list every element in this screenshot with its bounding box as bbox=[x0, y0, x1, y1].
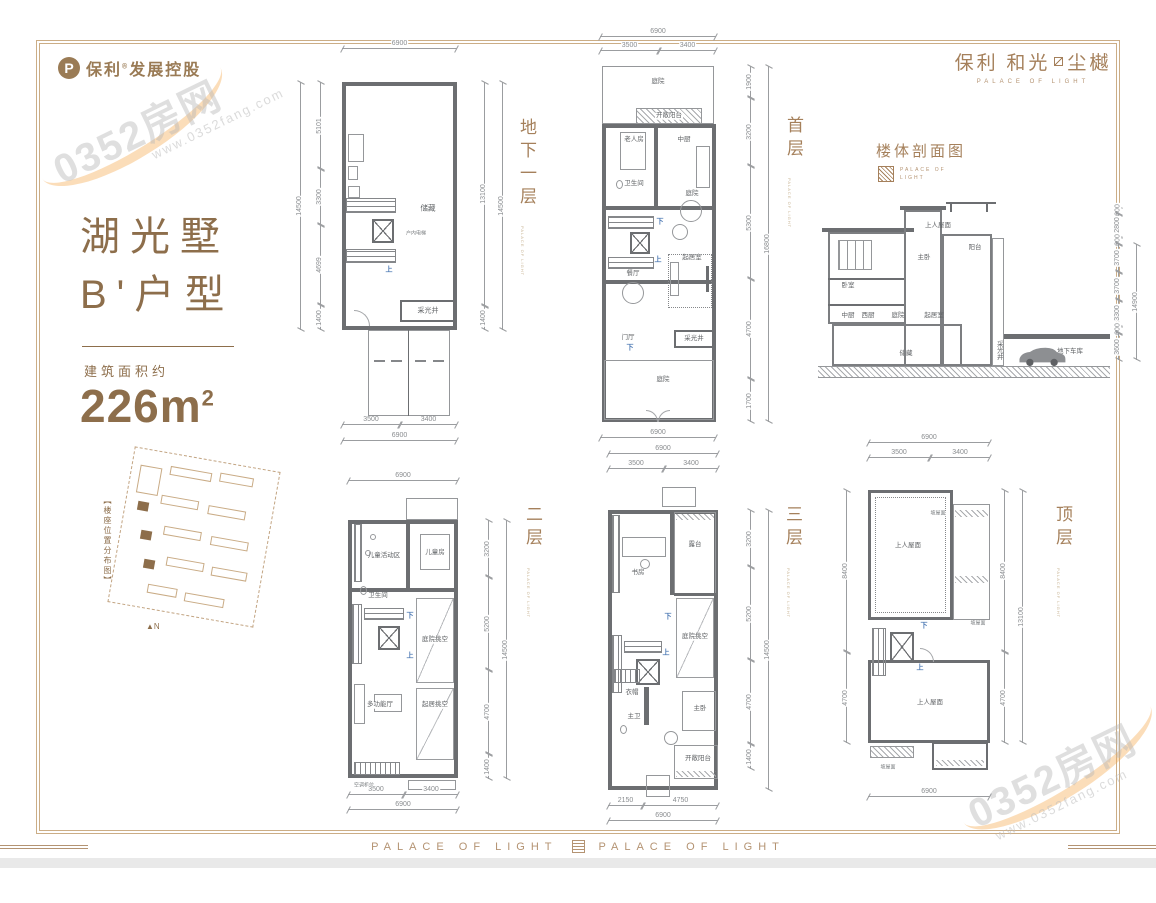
dimension: 14500 bbox=[502, 82, 503, 330]
building-footprint bbox=[136, 465, 163, 496]
dimension: 3500 bbox=[342, 424, 400, 425]
dimension: 8400 bbox=[846, 490, 847, 652]
courtyard-outline bbox=[604, 360, 714, 420]
dimension: 6900 bbox=[600, 36, 716, 37]
pergola-post bbox=[950, 204, 952, 212]
dimension: 4699 bbox=[320, 225, 321, 305]
dimension: 5200 bbox=[750, 567, 751, 660]
window-grid bbox=[838, 240, 872, 270]
dimension: 3200 bbox=[750, 98, 751, 166]
floor-slab bbox=[828, 278, 906, 280]
section-room-label: 上人屋面 bbox=[925, 223, 951, 230]
garage-slab bbox=[1004, 334, 1110, 339]
room-label: 书房 bbox=[632, 570, 645, 577]
room-label: 主卫 bbox=[628, 714, 641, 721]
footer: PALACE OF LIGHT PALACE OF LIGHT bbox=[0, 838, 1156, 858]
stair-hatch bbox=[608, 257, 654, 269]
floor-sublabel: PALACE OF LIGHT bbox=[526, 568, 531, 618]
dimension: 3400 bbox=[659, 50, 716, 51]
tower-outline bbox=[904, 210, 942, 366]
closet-hatch bbox=[354, 524, 362, 582]
roof-hatch bbox=[955, 510, 988, 517]
room-label: 儿童房 bbox=[425, 550, 445, 557]
plant-icon bbox=[680, 200, 702, 222]
dimension: 6900 bbox=[600, 437, 716, 438]
building-footprint bbox=[163, 526, 202, 541]
pergola bbox=[946, 202, 996, 204]
roof-hatch bbox=[870, 746, 914, 758]
palace-logo-text: PALACE OFLIGHT bbox=[900, 166, 946, 182]
logo-line1: PALACE OF bbox=[900, 166, 946, 174]
room-label: 上人屋面 bbox=[895, 543, 921, 550]
stair-direction-label: 上 bbox=[386, 267, 393, 274]
dimension: 3700 bbox=[1118, 272, 1119, 300]
dimension: 4700 bbox=[846, 652, 847, 743]
highlighted-building bbox=[143, 559, 155, 570]
room-label: 采光井 bbox=[684, 336, 704, 343]
ac-platform-hatch bbox=[354, 762, 400, 775]
dimension: 14500 bbox=[300, 82, 301, 330]
section-room-label: 主卧 bbox=[918, 255, 931, 262]
chair-icon bbox=[664, 731, 678, 745]
dimension: 4700 bbox=[488, 670, 489, 754]
floor-slab bbox=[828, 304, 906, 306]
section-room-label: 卧室 bbox=[842, 283, 855, 290]
dimension: 14900 bbox=[1136, 244, 1137, 360]
dimension: 3500 bbox=[600, 50, 659, 51]
dimension: 4700 bbox=[1004, 652, 1005, 743]
room-label: 老人房 bbox=[624, 137, 644, 144]
elevator-icon bbox=[378, 626, 400, 650]
roof-hatch bbox=[936, 760, 984, 766]
stair-direction-label: 下 bbox=[665, 614, 672, 621]
dimension: 5101 bbox=[320, 82, 321, 169]
closet-hatch bbox=[612, 515, 620, 593]
room-label: 开敞阳台 bbox=[655, 113, 683, 120]
elevator-icon bbox=[630, 232, 650, 254]
room-label: 储藏 bbox=[421, 204, 436, 212]
building-footprint bbox=[184, 592, 225, 608]
section-title: 楼体剖面图 bbox=[876, 140, 966, 161]
room-label: 中厨 bbox=[678, 137, 691, 144]
unit-info: 湖光墅 B'户型 建筑面积约 226m2 bbox=[80, 208, 234, 433]
plant-icon bbox=[672, 224, 688, 240]
dimension: 3400 bbox=[400, 424, 457, 425]
dimension: 2150 bbox=[608, 805, 643, 806]
stair-direction-label: 上 bbox=[917, 665, 924, 672]
dimension: 5300 bbox=[750, 166, 751, 279]
floor-label-third: 三层 bbox=[780, 505, 805, 551]
site-location-map: 【楼座位置分布图】 ▲N bbox=[58, 452, 288, 652]
balcony-hatch bbox=[676, 771, 716, 777]
stair-direction-label: 下 bbox=[921, 623, 928, 630]
dimension: 6900 bbox=[868, 442, 990, 443]
closet-icon bbox=[644, 687, 649, 725]
room-label: 庭院 bbox=[657, 377, 670, 384]
car-icon bbox=[1016, 344, 1068, 367]
elevator-icon bbox=[890, 632, 914, 662]
floor-sublabel: PALACE OF LIGHT bbox=[520, 226, 525, 276]
floor-sublabel: PALACE OF LIGHT bbox=[1056, 568, 1061, 618]
wardrobe-hatch bbox=[614, 669, 640, 683]
north-label: N bbox=[154, 622, 160, 631]
wall bbox=[670, 510, 674, 595]
floor-sublabel: PALACE OF LIGHT bbox=[786, 568, 791, 618]
project-name: 保利 和光 尘樾 bbox=[938, 48, 1128, 75]
floor-label-basement: 地下一层 bbox=[514, 118, 539, 210]
wall bbox=[654, 124, 658, 210]
room-label: 庭院 bbox=[652, 79, 665, 86]
dimension: 3500 bbox=[348, 794, 404, 795]
dimension: 6900 bbox=[342, 48, 457, 49]
door-arc bbox=[920, 648, 934, 662]
developer-name-cn: 保利 bbox=[86, 62, 122, 79]
dimension: 3200 bbox=[488, 520, 489, 577]
dimension: 6900 bbox=[608, 820, 718, 821]
sofa-icon bbox=[354, 684, 365, 724]
cabinet-icon bbox=[348, 186, 360, 198]
room-label: 起居室 bbox=[682, 255, 702, 262]
site-map-label: 【楼座位置分布图】 bbox=[102, 496, 113, 586]
dimension: 6900 bbox=[348, 809, 458, 810]
parking-mark bbox=[391, 360, 402, 362]
room-label: 坡屋面 bbox=[930, 512, 945, 517]
kitchen-counter-icon bbox=[696, 146, 710, 188]
divider bbox=[82, 346, 234, 347]
side-roof-outline bbox=[953, 504, 990, 620]
project-name-en: PALACE OF LIGHT bbox=[938, 79, 1128, 85]
section-room-label: 西厨 bbox=[862, 313, 875, 320]
desk-icon bbox=[622, 537, 666, 557]
parking-divider bbox=[408, 330, 409, 416]
stair-direction-label: 下 bbox=[627, 345, 634, 352]
room-label: 庭院 bbox=[686, 191, 699, 198]
room-label: 庭院挑空 bbox=[681, 634, 709, 641]
terrace-hatch bbox=[676, 514, 714, 520]
roof-overhang-outline bbox=[406, 498, 458, 520]
parking-mark bbox=[374, 360, 385, 362]
building-footprint bbox=[210, 536, 249, 551]
dimension: 3700 bbox=[1118, 244, 1119, 272]
dimension: 6900 bbox=[342, 440, 457, 441]
wall bbox=[406, 520, 410, 588]
room-label: 起居挑空 bbox=[421, 702, 449, 709]
floor-label-second: 二层 bbox=[520, 505, 545, 551]
area-label: 建筑面积约 bbox=[84, 361, 234, 380]
parking-mark bbox=[433, 360, 444, 362]
building-footprint bbox=[147, 584, 178, 598]
play-icon bbox=[370, 534, 376, 540]
seal-icon bbox=[1054, 57, 1063, 66]
dimension: 4750 bbox=[643, 805, 718, 806]
site-map-outline bbox=[107, 446, 280, 627]
room-label: 门厅 bbox=[622, 335, 635, 342]
dimension: 13100 bbox=[484, 82, 485, 306]
unit-title-line2: B'户型 bbox=[80, 266, 234, 324]
dimension: 4700 bbox=[750, 660, 751, 744]
dimension: 8400 bbox=[1004, 490, 1005, 652]
stair-hatch bbox=[346, 249, 396, 263]
section-room-label: 阳台 bbox=[969, 245, 982, 252]
stair-direction-label: 上 bbox=[663, 650, 670, 657]
floor-sublabel: PALACE OF LIGHT bbox=[787, 178, 792, 228]
floor-label-roof: 顶层 bbox=[1050, 505, 1075, 551]
dimension: 1400 bbox=[484, 306, 485, 330]
stair-hatch bbox=[624, 641, 662, 653]
parking-mark bbox=[415, 360, 426, 362]
dimension: 3400 bbox=[664, 468, 718, 469]
first-floor-plan: 6900 3500 3400 庭院 开敞阳台 老人房 中厨 卫生间 下 上 庭院… bbox=[558, 28, 813, 448]
dimension: 1400 bbox=[320, 305, 321, 330]
dimension: 16800 bbox=[768, 66, 769, 422]
ground-hatch bbox=[818, 366, 1110, 378]
stair-hatch bbox=[352, 604, 362, 664]
developer-name: 保利®发展控股 bbox=[86, 56, 201, 80]
roof-hatch bbox=[955, 576, 988, 583]
stair-hatch bbox=[608, 216, 654, 229]
elevator-icon bbox=[372, 219, 394, 243]
roof-floor-plan: 6900 3500 3400 上人屋面 坡屋面 坡屋面 下 上 上人屋面 坡屋面… bbox=[828, 428, 1088, 838]
stair-direction-label: 下 bbox=[657, 219, 664, 226]
dimension: 3500 bbox=[868, 457, 930, 458]
stair-direction-label: 上 bbox=[407, 653, 414, 660]
area-sup: 2 bbox=[202, 386, 215, 411]
project-name-2: 尘樾 bbox=[1067, 48, 1111, 75]
room-label: 户内电梯 bbox=[406, 232, 426, 237]
room-label: 采光井 bbox=[418, 308, 439, 315]
palace-logo-icon bbox=[878, 166, 894, 182]
cabinet-icon bbox=[348, 166, 358, 180]
sofa-icon bbox=[670, 262, 679, 296]
building-footprint bbox=[169, 466, 212, 482]
area-value: 226m2 bbox=[80, 380, 234, 433]
room-label: 衣帽 bbox=[626, 690, 639, 697]
dormer-outline bbox=[662, 487, 696, 507]
floor-label-first: 首层 bbox=[781, 116, 806, 162]
room-label: 主卧 bbox=[694, 706, 707, 713]
building-footprint bbox=[219, 473, 254, 488]
section-room-label: 中厨 bbox=[842, 313, 855, 320]
terrace-outline bbox=[674, 512, 716, 595]
wall bbox=[674, 593, 718, 596]
dimension: 1400 bbox=[488, 754, 489, 779]
highlighted-building bbox=[137, 501, 149, 512]
parking-stall bbox=[368, 330, 450, 416]
dimension: 3500 bbox=[608, 468, 664, 469]
section-room-label: 起居室 bbox=[924, 313, 944, 320]
footer-palace-right: PALACE OF LIGHT bbox=[599, 841, 785, 853]
developer-name-rest: 发展控股 bbox=[129, 62, 201, 79]
room-label: 庭院挑空 bbox=[421, 637, 449, 644]
footer-palace-left: PALACE OF LIGHT bbox=[371, 841, 557, 853]
stoop-outline bbox=[646, 775, 670, 797]
dimension: 3400 bbox=[930, 457, 990, 458]
tv-icon bbox=[706, 266, 709, 292]
cabinet-icon bbox=[348, 134, 364, 162]
stair-direction-label: 上 bbox=[655, 257, 662, 264]
room-label: 餐厅 bbox=[627, 271, 640, 278]
block-outline bbox=[942, 234, 992, 366]
poly-p-icon: P bbox=[58, 57, 80, 79]
project-logo: 保利 和光 尘樾 PALACE OF LIGHT bbox=[938, 48, 1128, 85]
room-label: 坡屋面 bbox=[970, 622, 985, 627]
project-name-1: 保利 和光 bbox=[955, 48, 1051, 75]
dimension: 3400 bbox=[404, 794, 458, 795]
room-label: 露台 bbox=[689, 542, 702, 549]
logo-line2: LIGHT bbox=[900, 174, 946, 182]
building-section-drawing: 楼体剖面图 PALACE OFLIGHT 储藏 卧室 中厨 西厨 庭院 起居室 … bbox=[818, 138, 1156, 400]
room-label: 上人屋面 bbox=[917, 700, 943, 707]
dimension: 14500 bbox=[768, 510, 769, 790]
section-room-label: 采光井 bbox=[995, 340, 1002, 360]
building-footprint bbox=[207, 505, 246, 520]
footer-logo-icon bbox=[572, 840, 585, 853]
stair-hatch bbox=[346, 198, 396, 213]
room-label: 多功能厅 bbox=[367, 702, 393, 709]
toilet-icon bbox=[616, 180, 623, 189]
dimension: 3300 bbox=[320, 169, 321, 225]
room-label: 卫生间 bbox=[368, 593, 388, 600]
building-footprint bbox=[211, 567, 248, 582]
building-footprint bbox=[160, 495, 199, 510]
pergola-post bbox=[986, 204, 988, 212]
toilet-icon bbox=[360, 586, 367, 595]
dimension: 3200 bbox=[750, 510, 751, 567]
dimension: 1700 bbox=[750, 379, 751, 422]
dimension: 1900 bbox=[750, 66, 751, 98]
chair-icon bbox=[640, 559, 650, 569]
parapet bbox=[900, 206, 946, 210]
room-label: 卫生间 bbox=[624, 181, 644, 188]
stair-direction-label: 下 bbox=[407, 613, 414, 620]
dimension: 6900 bbox=[868, 796, 990, 797]
room-label: 坡屋面 bbox=[880, 766, 895, 771]
room-label: 儿童活动区 bbox=[368, 553, 401, 560]
void-opening bbox=[416, 688, 454, 760]
area-number: 226m bbox=[80, 380, 202, 432]
dimension: 6900 bbox=[348, 480, 458, 481]
dimension: 14500 bbox=[506, 520, 507, 779]
dimension: 5200 bbox=[488, 577, 489, 670]
north-arrow: ▲N bbox=[146, 622, 160, 631]
toilet-icon bbox=[620, 725, 627, 734]
footer-text: PALACE OF LIGHT PALACE OF LIGHT bbox=[0, 840, 1156, 853]
developer-logo: P 保利®发展控股 bbox=[58, 56, 201, 80]
dimension: 3600 bbox=[1118, 333, 1119, 360]
dimension: 1400 bbox=[750, 744, 751, 769]
watermark-url: www.0352fang.com bbox=[149, 85, 286, 162]
dimension: 4700 bbox=[750, 279, 751, 379]
building-footprint bbox=[166, 557, 205, 572]
section-room-label: 庭院 bbox=[892, 313, 905, 320]
room-label: 开敞阳台 bbox=[684, 756, 712, 763]
stair-hatch bbox=[872, 628, 886, 676]
watermark-text: 0352房网 bbox=[42, 64, 230, 195]
basement-floor-plan: 6900 14500 5101 3300 4699 1400 13100 140… bbox=[288, 38, 538, 450]
stair-hatch bbox=[612, 635, 622, 693]
dimension: 13100 bbox=[1022, 490, 1023, 743]
stair-hatch bbox=[364, 608, 404, 620]
highlighted-building bbox=[140, 530, 152, 541]
dining-table-icon bbox=[622, 282, 644, 304]
dimension: 6900 bbox=[608, 453, 718, 454]
unit-title-line1: 湖光墅 bbox=[80, 208, 234, 266]
bottom-gray-bar bbox=[0, 858, 1156, 868]
